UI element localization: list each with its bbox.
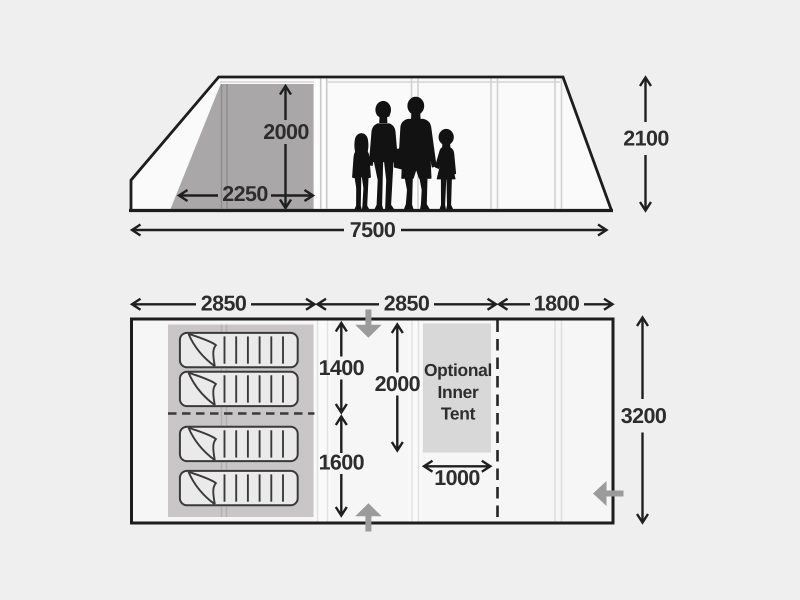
svg-text:1800: 1800 — [534, 292, 580, 316]
svg-text:2250: 2250 — [222, 182, 268, 206]
svg-text:1400: 1400 — [319, 356, 365, 380]
svg-text:1600: 1600 — [319, 451, 365, 475]
svg-text:1000: 1000 — [434, 466, 480, 490]
svg-text:2100: 2100 — [623, 127, 669, 151]
svg-text:Optional: Optional — [424, 360, 492, 380]
svg-text:7500: 7500 — [350, 218, 396, 242]
svg-text:2000: 2000 — [263, 120, 309, 144]
svg-text:3200: 3200 — [621, 404, 667, 428]
svg-text:Tent: Tent — [441, 404, 476, 424]
svg-text:2000: 2000 — [375, 372, 421, 396]
svg-text:Inner: Inner — [437, 382, 479, 402]
svg-text:2850: 2850 — [201, 292, 247, 316]
svg-text:2850: 2850 — [384, 292, 430, 316]
